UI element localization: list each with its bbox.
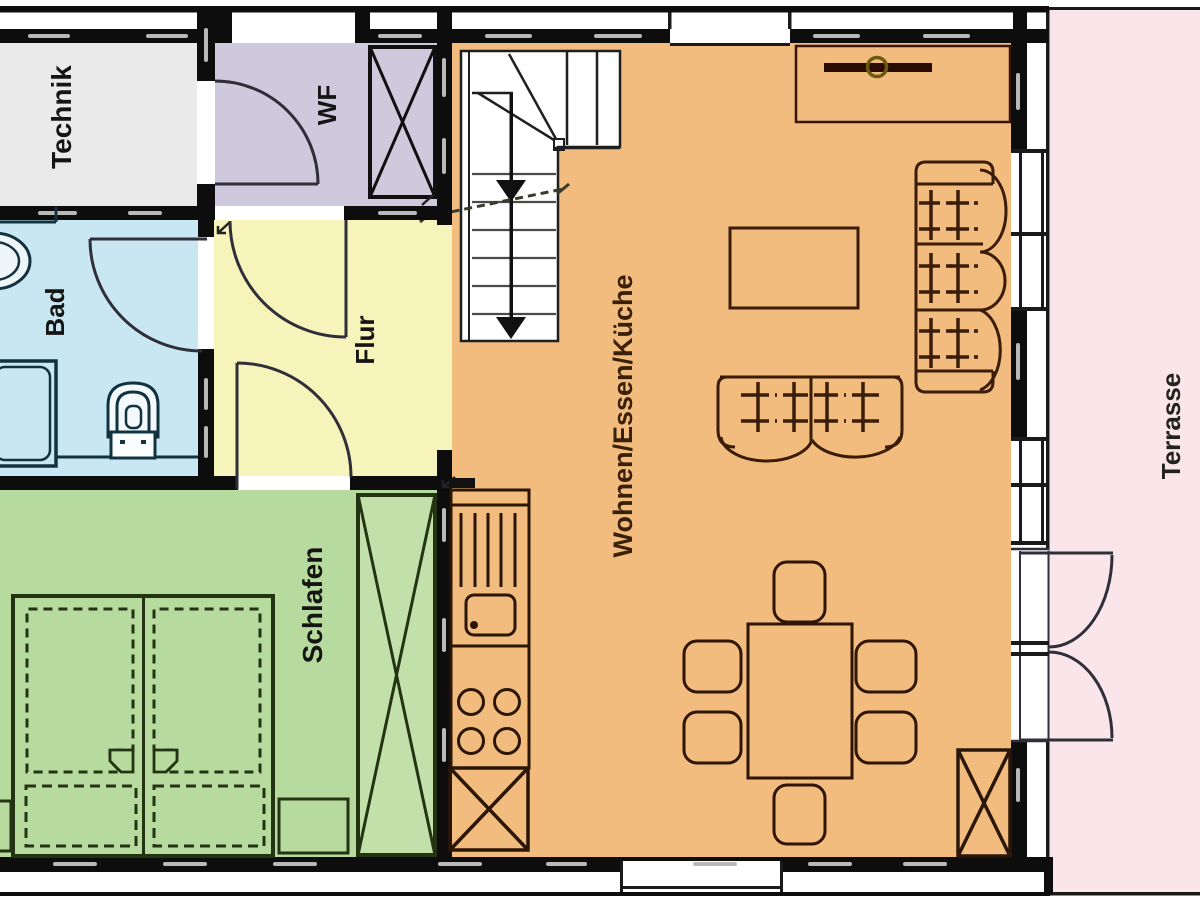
svg-text:Bad: Bad bbox=[40, 287, 70, 336]
svg-text:Technik: Technik bbox=[46, 65, 77, 169]
svg-text:Terrasse: Terrasse bbox=[1156, 373, 1186, 480]
svg-text:WF: WF bbox=[312, 85, 342, 125]
svg-text:Flur: Flur bbox=[350, 315, 380, 364]
svg-text:Wohnen/Essen/Küche: Wohnen/Essen/Küche bbox=[608, 274, 638, 557]
svg-text:Schlafen: Schlafen bbox=[297, 547, 328, 664]
